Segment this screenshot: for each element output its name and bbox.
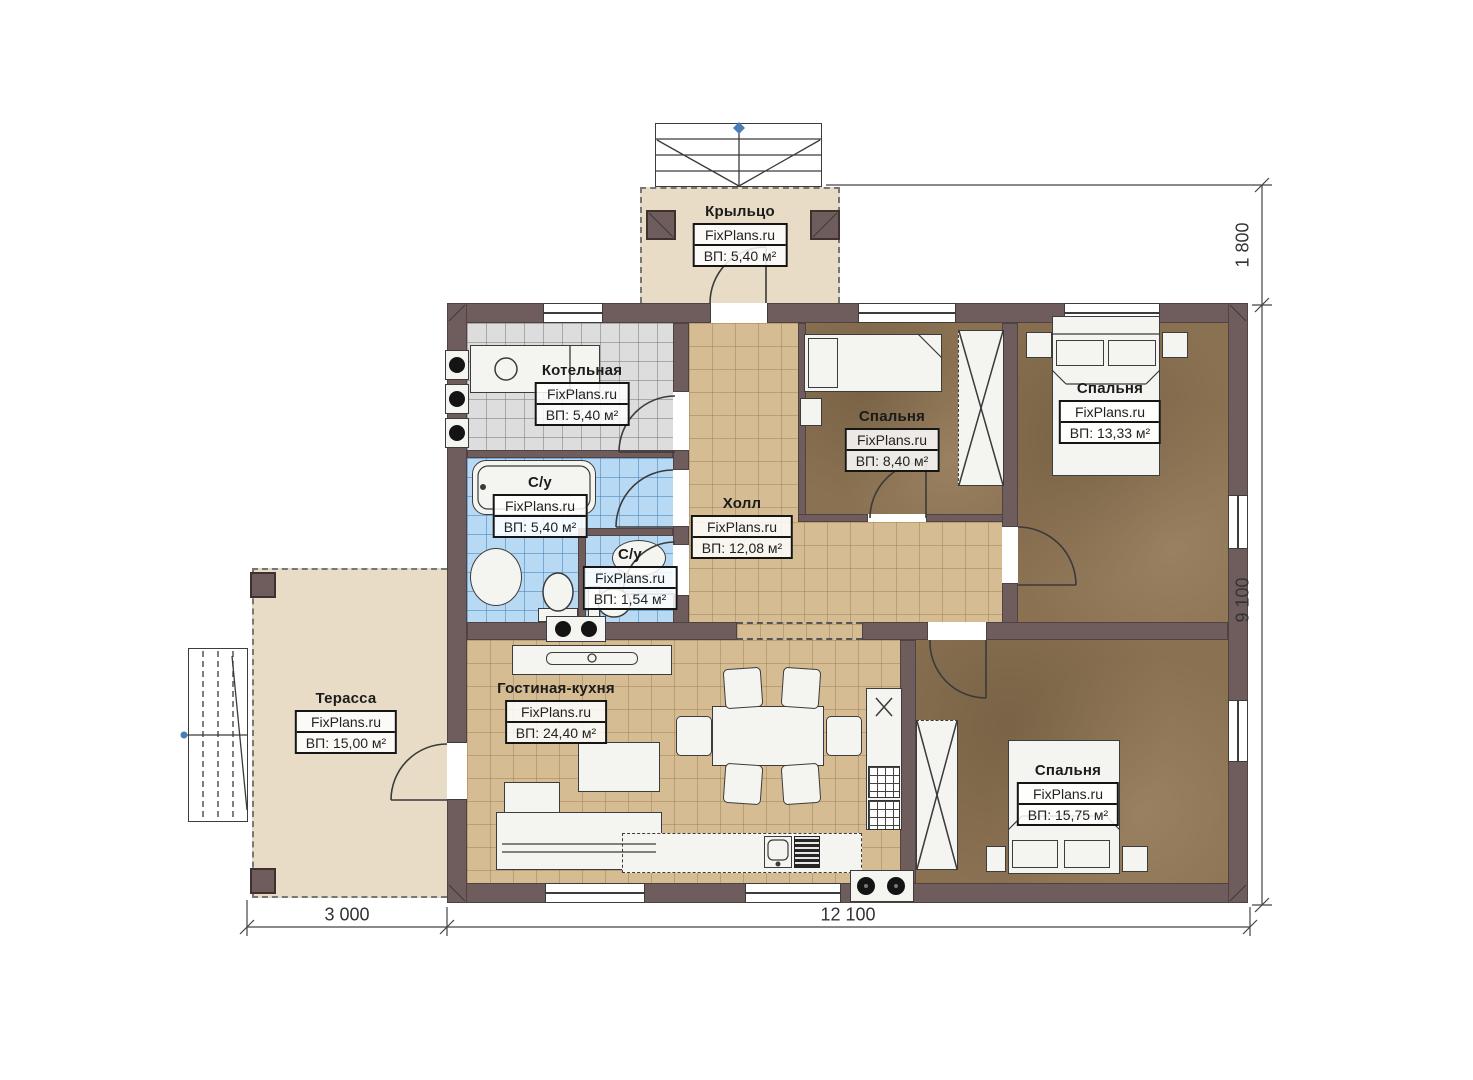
porch-post-right (810, 210, 840, 240)
wardrobe-bedroom-top (958, 330, 1004, 486)
room-name: С/у (583, 546, 678, 563)
wall-south-corridor-b (862, 622, 928, 640)
kitchen-sink (764, 836, 792, 868)
bedroom-right-nightstand-2 (1162, 332, 1188, 358)
room-name: Спальня (1059, 380, 1161, 397)
room-name: Холл (691, 495, 793, 512)
window-living-2 (745, 883, 841, 903)
room-label-boiler: Котельная FixPlans.ru ВП: 5,40 м² (535, 362, 630, 426)
room-label-terrace: Терасса FixPlans.ru ВП: 15,00 м² (295, 690, 397, 754)
room-label-bedroom-bottom: Спальня FixPlans.ru ВП: 15,75 м² (1017, 762, 1119, 826)
kitchen-fridge-grill (794, 836, 820, 868)
room-info-box: FixPlans.ru ВП: 15,75 м² (1017, 782, 1119, 826)
floor-plan: Крыльцо FixPlans.ru ВП: 5,40 м² Котельна… (0, 0, 1473, 1080)
window-boiler (543, 303, 603, 323)
room-brand: FixPlans.ru (847, 430, 938, 451)
room-brand: FixPlans.ru (297, 712, 395, 733)
terrace-post-top (250, 572, 276, 598)
window-living-1 (545, 883, 645, 903)
room-brand: FixPlans.ru (1019, 784, 1117, 805)
room-name: Терасса (295, 690, 397, 707)
kitchen-oven (868, 766, 900, 798)
room-area: ВП: 12,08 м² (693, 538, 791, 557)
room-label-hall: Холл FixPlans.ru ВП: 12,08 м² (691, 495, 793, 559)
bedroom-bottom-door-gap (928, 622, 986, 640)
boiler-door-gap (673, 392, 689, 450)
room-area: ВП: 15,75 м² (1019, 805, 1117, 824)
room-name: Гостиная-кухня (497, 680, 615, 697)
room-name: Крыльцо (693, 203, 788, 220)
bedroom-bottom-nightstand-1 (986, 846, 1006, 872)
room-brand: FixPlans.ru (507, 702, 605, 723)
room-brand: FixPlans.ru (585, 568, 676, 589)
room-area: ВП: 1,54 м² (585, 589, 676, 608)
room-brand: FixPlans.ru (495, 496, 586, 517)
terrace-post-bottom (250, 868, 276, 894)
kitchen-microwave (868, 800, 900, 830)
dining-chair-2 (781, 667, 822, 710)
coffee-table (578, 742, 660, 792)
wall-wc-north (578, 528, 673, 536)
room-label-bedroom-top: Спальня FixPlans.ru ВП: 8,40 м² (845, 408, 940, 472)
bedroom-bottom-nightstand-2 (1122, 846, 1148, 872)
room-area: ВП: 24,40 м² (507, 723, 605, 742)
wall-bed2-west-a (1002, 323, 1018, 527)
room-info-box: FixPlans.ru ВП: 1,54 м² (583, 566, 678, 610)
room-info-box: FixPlans.ru ВП: 13,33 м² (1059, 400, 1161, 444)
room-name: Котельная (535, 362, 630, 379)
room-brand: FixPlans.ru (1061, 402, 1159, 423)
dining-chair-1 (723, 667, 764, 710)
bed-bottom-pillow-1 (1012, 840, 1058, 868)
stove-top-wall (546, 616, 606, 642)
wall-bed1-south-a (798, 514, 868, 522)
room-area: ВП: 13,33 м² (1061, 423, 1159, 442)
room-info-box: FixPlans.ru ВП: 5,40 м² (493, 494, 588, 538)
room-name: С/у (493, 474, 588, 491)
room-info-box: FixPlans.ru ВП: 15,00 м² (295, 710, 397, 754)
wall-bath-east-1 (673, 323, 689, 392)
room-area: ВП: 5,40 м² (495, 517, 586, 536)
dining-chair-3 (723, 763, 764, 806)
room-label-porch: Крыльцо FixPlans.ru ВП: 5,40 м² (693, 203, 788, 267)
room-area: ВП: 15,00 м² (297, 733, 395, 752)
room-label-wc: С/у FixPlans.ru ВП: 1,54 м² (583, 546, 678, 610)
wall-boiler-bath (467, 450, 673, 458)
room-brand: FixPlans.ru (537, 384, 628, 405)
bedroom-top-door-gap (868, 514, 926, 522)
tv (546, 652, 638, 665)
kitchen-counter-bottom (622, 833, 862, 873)
wall-bath-east-2 (673, 450, 689, 470)
stove-bottom (850, 870, 914, 902)
room-info-box: FixPlans.ru ВП: 8,40 м² (845, 428, 940, 472)
boiler-equipment-box-3 (445, 418, 469, 448)
porch-post-left (646, 210, 676, 240)
room-brand: FixPlans.ru (695, 225, 786, 246)
room-area: ВП: 5,40 м² (537, 405, 628, 424)
dimension-terrace-width: 3 000 (324, 905, 369, 926)
bedroom-top-nightstand (800, 398, 822, 426)
bathroom-sink (470, 548, 522, 606)
room-info-box: FixPlans.ru ВП: 24,40 м² (505, 700, 607, 744)
dining-chair-4 (781, 763, 822, 806)
boiler-equipment-box-1 (445, 350, 469, 380)
room-name: Спальня (1017, 762, 1119, 779)
dining-chair-5 (676, 716, 712, 756)
wall-bed1-south-b (926, 514, 1010, 522)
bedroom-right-door-gap (1002, 527, 1018, 583)
boiler-equipment-box-2 (445, 384, 469, 414)
window-bedroom-bottom-side (1228, 700, 1248, 762)
window-bedroom-right-side (1228, 495, 1248, 549)
room-label-bathroom: С/у FixPlans.ru ВП: 5,40 м² (493, 474, 588, 538)
front-door-gap (710, 303, 768, 323)
room-info-box: FixPlans.ru ВП: 12,08 м² (691, 515, 793, 559)
porch-stairs (655, 123, 822, 187)
bed-right-pillow-2 (1108, 340, 1156, 366)
room-area: ВП: 8,40 м² (847, 451, 938, 470)
bed-right-pillow-1 (1056, 340, 1104, 366)
room-info-box: FixPlans.ru ВП: 5,40 м² (535, 382, 630, 426)
bathroom-door-gap (673, 470, 689, 526)
wardrobe-bedroom-bottom (916, 720, 958, 870)
room-info-box: FixPlans.ru ВП: 5,40 м² (693, 223, 788, 267)
hall-living-opening (737, 622, 862, 640)
room-brand: FixPlans.ru (693, 517, 791, 538)
room-label-living: Гостиная-кухня FixPlans.ru ВП: 24,40 м² (497, 680, 615, 744)
bedroom-right-nightstand-1 (1026, 332, 1052, 358)
wall-bath-east-3 (673, 526, 689, 545)
wall-living-bed3 (900, 640, 916, 883)
room-label-bedroom-right: Спальня FixPlans.ru ВП: 13,33 м² (1059, 380, 1161, 444)
dimension-house-height: 9 100 (1233, 577, 1254, 622)
dining-chair-6 (826, 716, 862, 756)
terrace-door-gap (447, 742, 467, 800)
dimension-porch-depth: 1 800 (1233, 222, 1254, 267)
terrace-stairs (188, 648, 248, 822)
room-area: ВП: 5,40 м² (695, 246, 786, 265)
wall-south-corridor-c (986, 622, 1228, 640)
dining-table (712, 706, 824, 766)
dimension-house-width: 12 100 (820, 905, 875, 926)
bed-single-pillow (808, 338, 838, 388)
window-bedroom-top (858, 303, 956, 323)
room-name: Спальня (845, 408, 940, 425)
bed-bottom-pillow-2 (1064, 840, 1110, 868)
